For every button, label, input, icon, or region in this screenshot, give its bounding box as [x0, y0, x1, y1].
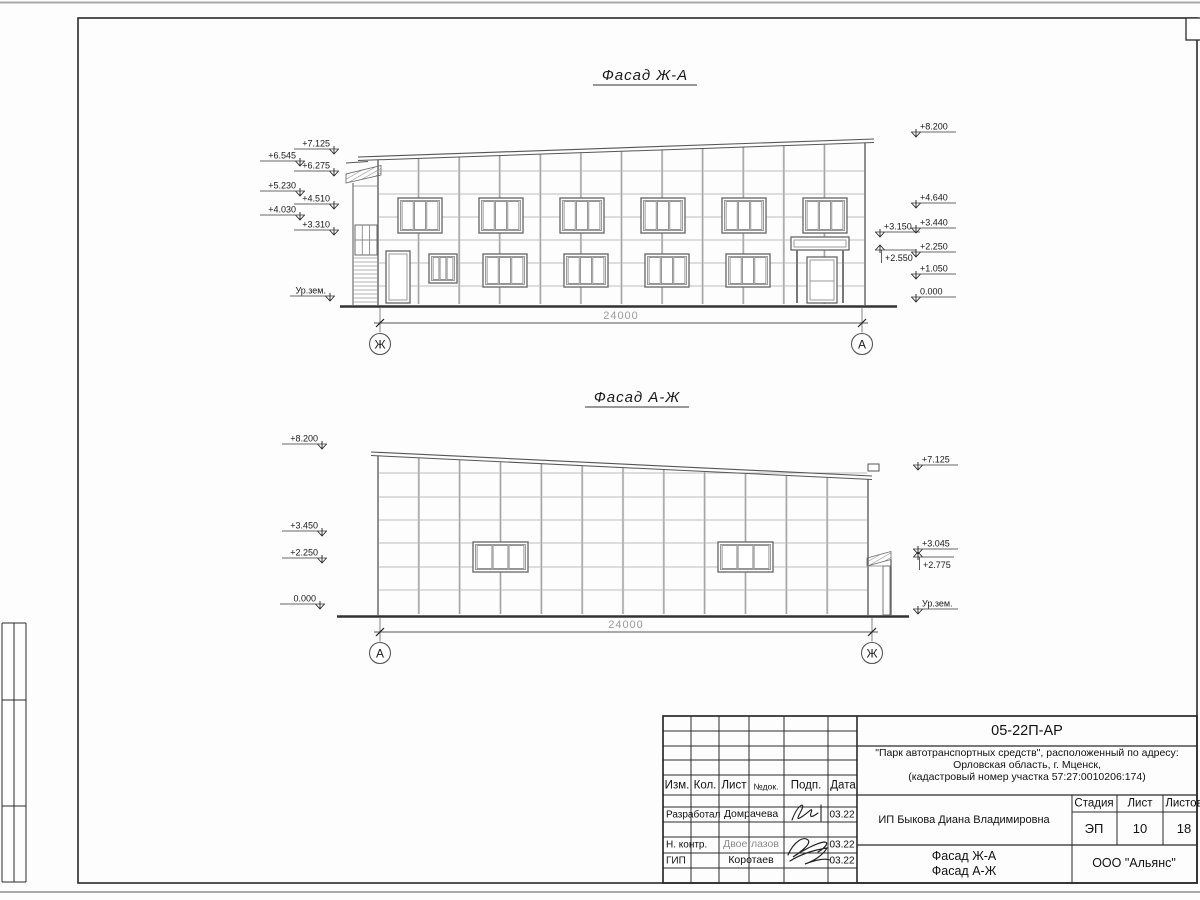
elevation-value: +2.775: [923, 560, 951, 570]
titleblock-date-ncontrol: 03.22: [829, 840, 854, 851]
axis-letter: Ж: [866, 647, 877, 661]
elevation-mark: +7.125: [913, 455, 958, 471]
elevation-mark: +3.310: [294, 220, 339, 236]
titleblock-date-gip: 03.22: [829, 856, 854, 867]
titleblock-col-kol: Кол.: [694, 780, 717, 793]
titleblock-sheets-label: Листов: [1165, 798, 1200, 811]
elevation-value: +7.125: [302, 139, 330, 149]
elevation-mark: +8.200: [911, 122, 956, 138]
titleblock-sheet-value: 10: [1133, 822, 1147, 836]
titleblock-sheet-label: Лист: [1128, 798, 1153, 811]
elevation-value: 0.000: [293, 594, 316, 604]
titleblock-project-line2: Орловская область, г. Мценск,: [953, 760, 1101, 772]
elevation-mark: 0.000: [280, 594, 325, 610]
titleblock-role-gip: ГИП: [666, 856, 686, 867]
facade-a-zh-drawing: 24000АЖФасад А-Ж+8.200+3.450+2.2500.000+…: [280, 389, 958, 664]
elevation-mark: +2.775: [913, 552, 954, 570]
elevation-value: +6.545: [268, 151, 296, 161]
elevation-value: +7.125: [922, 455, 950, 465]
facade-zh-a-drawing: 24000ЖАФасад Ж-А+6.545+5.230+4.030+7.125…: [260, 67, 956, 355]
elevation-mark: +3.450: [282, 521, 327, 537]
elevation-value: +6.275: [302, 161, 330, 171]
titleblock-name-ncontrol: Двоеглазов: [723, 839, 779, 851]
elevation-mark: Ур.зем.: [290, 286, 335, 302]
titleblock-client: ИП Быкова Диана Владимировна: [878, 814, 1049, 826]
elevation-mark: +3.440: [911, 218, 956, 234]
elevation-value: +4.510: [302, 194, 330, 204]
elevation-value: +3.440: [920, 218, 948, 228]
elevation-mark: +2.550: [875, 245, 916, 263]
elevation-value: +1.050: [920, 264, 948, 274]
titleblock-sheets-value: 18: [1177, 822, 1191, 836]
elevation-value: +4.030: [268, 205, 296, 215]
elevation-value: +2.250: [290, 548, 318, 558]
elevation-value: +2.550: [885, 253, 913, 263]
elevation-mark: +3.150: [875, 222, 920, 238]
titleblock-sheet-title-line2: Фасад А-Ж: [932, 865, 996, 879]
elevation-mark: +4.030: [260, 205, 305, 221]
elevation-value: +3.150: [884, 222, 912, 232]
elevation-mark: +6.275: [294, 161, 339, 177]
titleblock-organization: ООО "Альянс": [1092, 857, 1176, 871]
elevation-mark: +1.050: [911, 264, 956, 280]
facade-title: Фасад А-Ж: [594, 389, 681, 406]
facade-title: Фасад Ж-А: [602, 67, 688, 84]
elevation-value: 0.000: [920, 287, 943, 297]
elevation-value: +8.200: [290, 434, 318, 444]
titleblock-role-developer: Разработал: [666, 810, 720, 821]
axis-letter: А: [858, 338, 866, 352]
axis-letter: А: [376, 647, 384, 661]
elevation-value: +3.310: [302, 220, 330, 230]
dimension-label: 24000: [603, 310, 639, 322]
titleblock-name-developer: Домрачева: [724, 809, 778, 821]
signature-developer: [788, 800, 826, 824]
elevation-mark: +2.250: [282, 548, 327, 564]
titleblock-date-developer: 03.22: [829, 810, 854, 821]
titleblock-col-podp: Подп.: [791, 780, 822, 793]
titleblock-doc-number: 05-22П-АР: [991, 724, 1063, 740]
elevation-value: +3.450: [290, 521, 318, 531]
elevation-value: +2.250: [920, 242, 948, 252]
elevation-value: +3.045: [922, 539, 950, 549]
titleblock-col-data: Дата: [830, 780, 855, 793]
elevation-mark: +6.545: [260, 151, 305, 167]
titleblock-stage-label: Стадия: [1074, 798, 1113, 811]
titleblock-col-izm: Изм.: [665, 780, 690, 793]
elevation-mark: +5.230: [260, 181, 305, 197]
titleblock-col-list: Лист: [722, 780, 747, 793]
elevation-mark: +7.125: [294, 139, 339, 155]
elevation-mark: +4.640: [911, 193, 956, 209]
titleblock-col-ndok: №док.: [754, 782, 779, 791]
elevation-value: +4.640: [920, 193, 948, 203]
elevation-mark: +8.200: [282, 434, 327, 450]
elevation-mark: Ур.зем.: [913, 599, 958, 615]
elevation-value: Ур.зем.: [922, 599, 953, 609]
titleblock-sheet-title-line1: Фасад Ж-А: [932, 850, 996, 864]
elevation-mark: +2.250: [911, 242, 956, 258]
signature-gip: [785, 833, 833, 869]
dimension-label: 24000: [608, 619, 644, 631]
elevation-value: +8.200: [920, 122, 948, 132]
elevation-mark: +3.045: [913, 539, 958, 555]
titleblock-project-line3: (кадастровый номер участка 57:27:0010206…: [908, 772, 1145, 784]
elevation-value: +5.230: [268, 181, 296, 191]
elevation-value: Ур.зем.: [295, 286, 326, 296]
titleblock-stage-value: ЭП: [1085, 822, 1104, 836]
titleblock-role-ncontrol: Н. контр.: [666, 840, 707, 851]
titleblock-name-gip: Коротаев: [728, 855, 773, 867]
elevation-mark: 0.000: [911, 287, 956, 303]
titleblock-project-line1: "Парк автотранспортных средств", располо…: [875, 748, 1178, 760]
drawing-sheet: { "sheet": { "facade1": { "title": "Фаса…: [0, 0, 1200, 900]
axis-letter: Ж: [374, 338, 385, 352]
